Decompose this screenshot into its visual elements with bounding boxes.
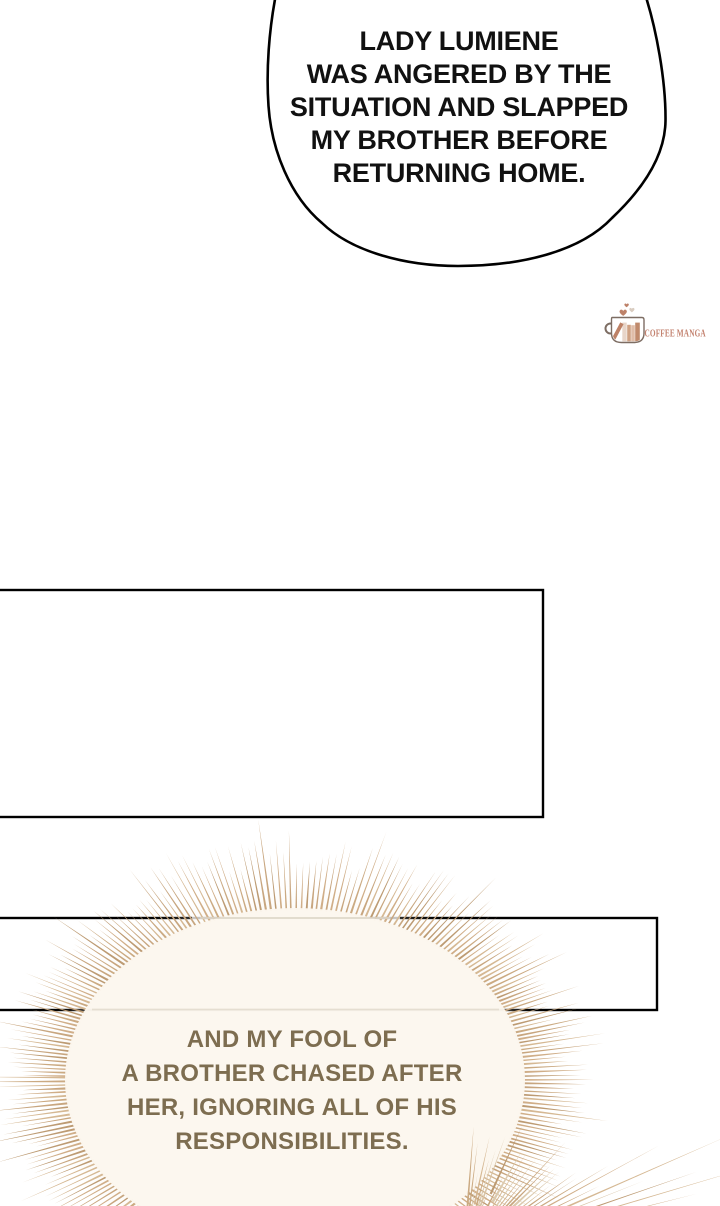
svg-text:HER, IGNORING ALL OF HIS: HER, IGNORING ALL OF HIS: [127, 1094, 457, 1121]
svg-text:WAS ANGERED BY THE: WAS ANGERED BY THE: [307, 59, 612, 89]
svg-text:SITUATION AND SLAPPED: SITUATION AND SLAPPED: [290, 92, 628, 122]
svg-text:MY BROTHER BEFORE: MY BROTHER BEFORE: [311, 125, 608, 155]
svg-text:A BROTHER CHASED AFTER: A BROTHER CHASED AFTER: [121, 1060, 462, 1087]
svg-text:RESPONSIBILITIES.: RESPONSIBILITIES.: [175, 1128, 409, 1155]
svg-text:AND MY FOOL OF: AND MY FOOL OF: [187, 1026, 398, 1053]
svg-text:RETURNING HOME.: RETURNING HOME.: [333, 158, 586, 188]
svg-text:LADY LUMIENE: LADY LUMIENE: [359, 26, 558, 56]
svg-text:COFFEE MANGA: COFFEE MANGA: [645, 327, 707, 339]
